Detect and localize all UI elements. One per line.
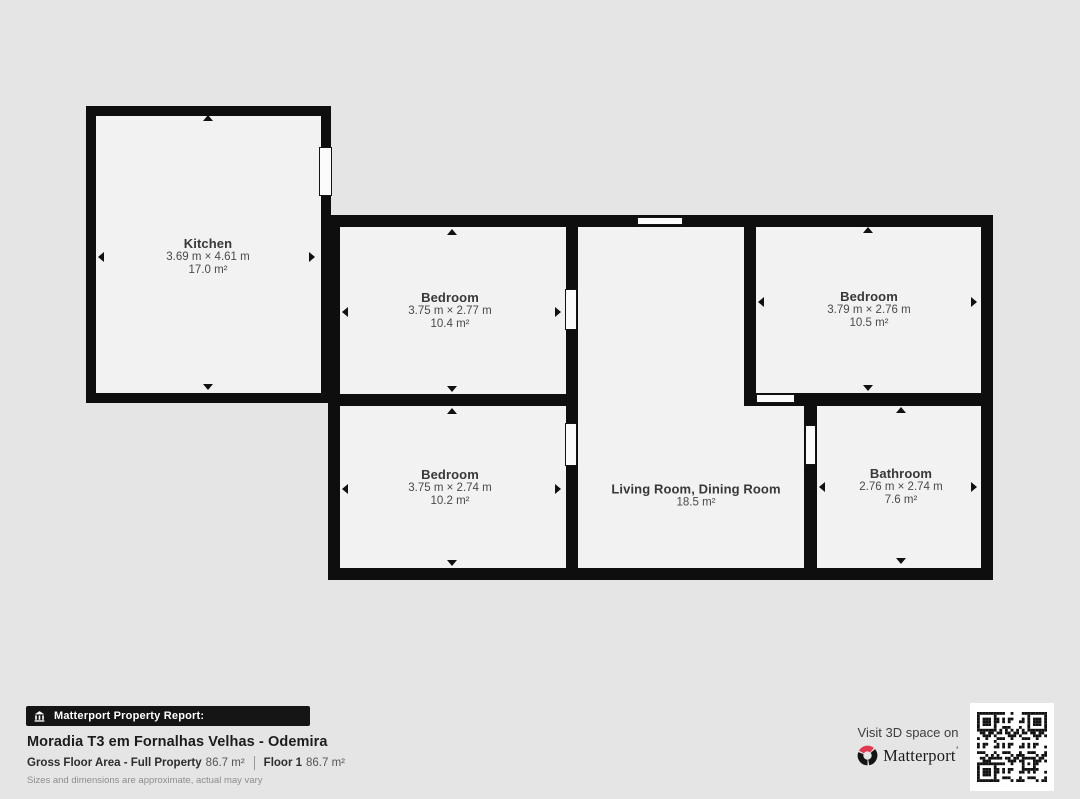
wall-living-bedroom-right (744, 227, 756, 406)
matterport-pinwheel-icon (857, 745, 878, 766)
arrow-down-icon (863, 385, 873, 391)
matterport-report-badge: Matterport Property Report: (26, 706, 310, 726)
arrow-down-icon (447, 560, 457, 566)
visit-3d-text: Visit 3D space on (850, 725, 966, 740)
floorplan-report-page: Kitchen 3.69 m × 4.61 m 17.0 m² Bedroom … (0, 0, 1080, 799)
qr-code (970, 703, 1054, 791)
bedroom-right-door (756, 394, 795, 403)
arrow-up-icon (863, 227, 873, 233)
arrow-right-icon (309, 252, 315, 262)
arrow-up-icon (447, 229, 457, 235)
arrow-up-icon (447, 408, 457, 414)
arrow-down-icon (896, 558, 906, 564)
arrow-right-icon (555, 484, 561, 494)
arrow-right-icon (971, 482, 977, 492)
wall-between-bedrooms (328, 394, 578, 406)
wall-living-bathroom (804, 393, 817, 568)
gross-floor-area-value: 86.7 m² (206, 757, 245, 769)
room-label-bedroom-top: Bedroom 3.75 m × 2.77 m 10.4 m² (408, 291, 491, 332)
kitchen-window (319, 147, 332, 196)
arrow-left-icon (342, 484, 348, 494)
matterport-wordmark: Matterport’ (883, 745, 959, 766)
room-label-living-dining: Living Room, Dining Room 18.5 m² (611, 483, 780, 510)
disclaimer-text: Sizes and dimensions are approximate, ac… (27, 775, 263, 786)
arrow-left-icon (98, 252, 104, 262)
floor-value: 86.7 m² (306, 757, 345, 769)
floor-label: Floor 1 (264, 757, 302, 769)
room-label-bedroom-right: Bedroom 3.79 m × 2.76 m 10.5 m² (827, 290, 910, 331)
visit-3d-space: Visit 3D space on Matterport’ (850, 725, 966, 766)
property-title: Moradia T3 em Fornalhas Velhas - Odemira (27, 734, 328, 750)
living-room-window (637, 217, 683, 225)
arrow-up-icon (896, 407, 906, 413)
bedroom-bottom-door (565, 423, 577, 466)
arrow-down-icon (203, 384, 213, 390)
arrow-left-icon (819, 482, 825, 492)
arrow-left-icon (758, 297, 764, 307)
arrow-right-icon (971, 297, 977, 307)
arrow-down-icon (447, 386, 457, 392)
room-label-bedroom-bottom: Bedroom 3.75 m × 2.74 m 10.2 m² (408, 468, 491, 509)
arrow-up-icon (203, 115, 213, 121)
room-label-bathroom: Bathroom 2.76 m × 2.74 m 7.6 m² (859, 467, 942, 508)
bathroom-door (805, 425, 816, 465)
floor-area-summary: Gross Floor Area - Full Property 86.7 m²… (27, 756, 345, 770)
floor-plan: Kitchen 3.69 m × 4.61 m 17.0 m² Bedroom … (0, 0, 1080, 799)
qr-pattern (977, 712, 1047, 782)
arrow-right-icon (555, 307, 561, 317)
trademark-mark: ’ (956, 745, 959, 755)
divider (254, 756, 255, 770)
matterport-logo: Matterport’ (850, 745, 966, 766)
room-label-kitchen: Kitchen 3.69 m × 4.61 m 17.0 m² (166, 237, 249, 278)
bedroom-top-door (565, 289, 577, 330)
building-icon (33, 710, 46, 723)
gross-floor-area-label: Gross Floor Area - Full Property (27, 757, 202, 769)
arrow-left-icon (342, 307, 348, 317)
badge-label: Matterport Property Report: (54, 710, 204, 722)
